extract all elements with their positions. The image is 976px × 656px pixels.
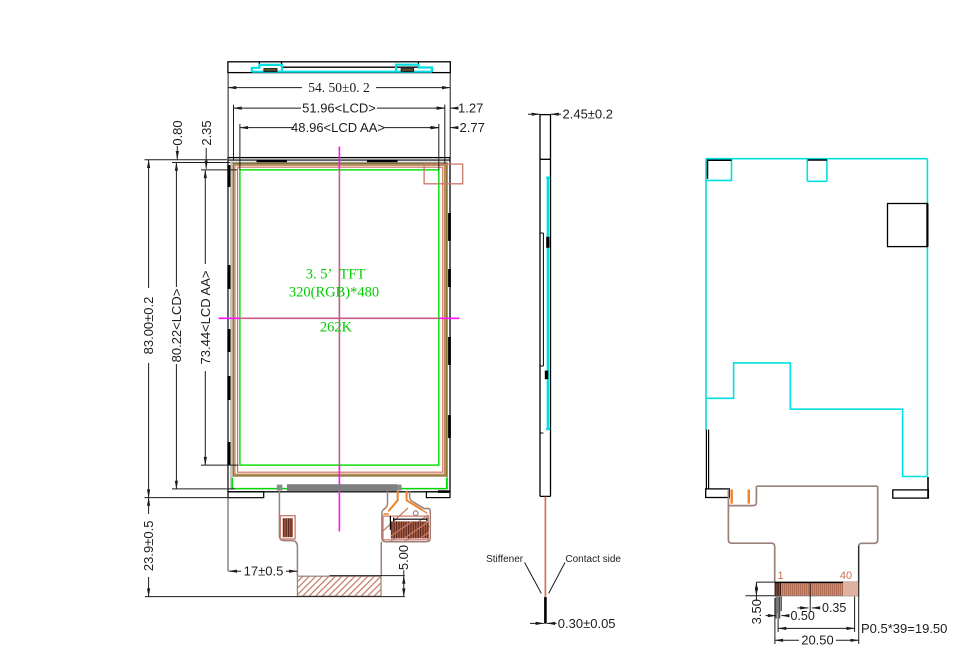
- svg-text:320(RGB)*480: 320(RGB)*480: [289, 284, 379, 300]
- svg-text:23.9±0.5: 23.9±0.5: [141, 521, 156, 572]
- svg-text:0.35: 0.35: [822, 601, 846, 615]
- svg-text:Stiffener: Stiffener: [486, 554, 524, 565]
- svg-text:51.96<LCD>: 51.96<LCD>: [302, 101, 376, 116]
- svg-text:80.22<LCD>: 80.22<LCD>: [169, 289, 184, 363]
- svg-text:3.50: 3.50: [749, 599, 764, 624]
- svg-text:83.00±0.2: 83.00±0.2: [141, 297, 156, 355]
- svg-text:0.30±0.05: 0.30±0.05: [558, 616, 616, 631]
- svg-text:48.96<LCD AA>: 48.96<LCD AA>: [291, 120, 385, 135]
- svg-text:0.50: 0.50: [791, 609, 815, 623]
- svg-text:2.35: 2.35: [199, 120, 214, 145]
- svg-text:40: 40: [840, 570, 852, 582]
- svg-text:1: 1: [777, 570, 783, 582]
- svg-text:2.45±0.2: 2.45±0.2: [563, 106, 614, 121]
- svg-text:3. 5’ TFT: 3. 5’ TFT: [306, 266, 366, 282]
- svg-text:73.44<LCD AA>: 73.44<LCD AA>: [198, 271, 213, 365]
- svg-text:2.77: 2.77: [460, 120, 485, 135]
- svg-text:20.50: 20.50: [801, 633, 834, 648]
- svg-text:54. 50±0. 2: 54. 50±0. 2: [308, 80, 369, 95]
- svg-text:Contact side: Contact side: [565, 554, 621, 565]
- svg-text:5.00: 5.00: [396, 545, 411, 570]
- svg-text:1.27: 1.27: [458, 101, 483, 116]
- svg-text:262K: 262K: [320, 320, 353, 336]
- svg-text:P0.5*39=19.50: P0.5*39=19.50: [861, 621, 947, 636]
- svg-text:17±0.5: 17±0.5: [244, 564, 284, 579]
- svg-text:0.80: 0.80: [170, 120, 185, 145]
